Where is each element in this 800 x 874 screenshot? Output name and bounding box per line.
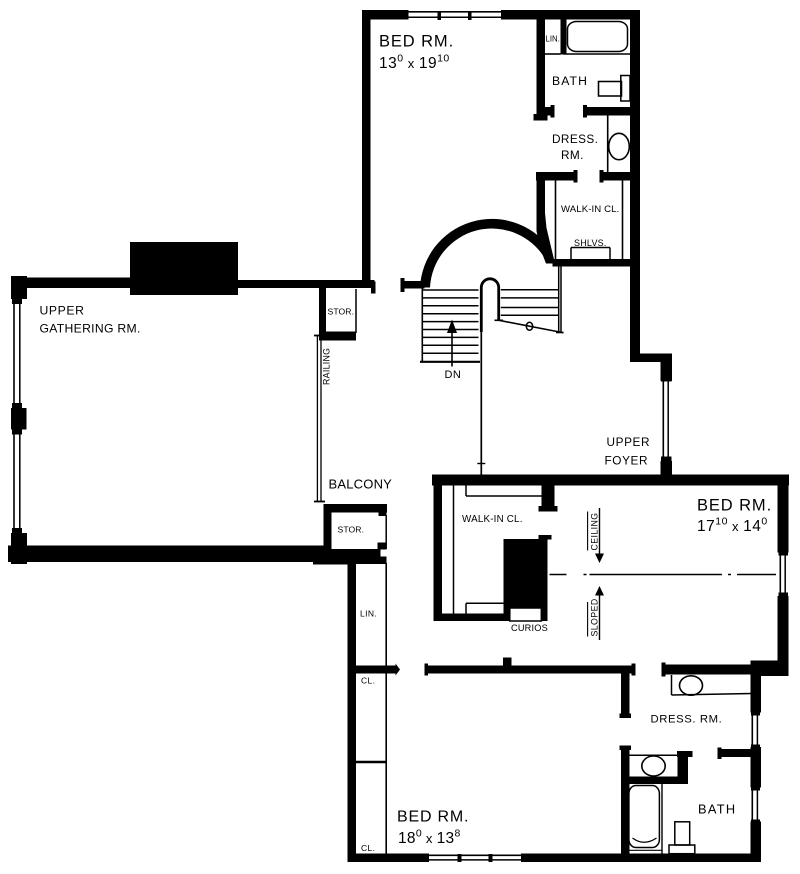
svg-text:CURIOS: CURIOS [511,623,548,633]
svg-text:RAILING: RAILING [322,348,332,385]
svg-text:LIN.: LIN. [360,609,377,619]
svg-text:CEILING: CEILING [589,513,599,551]
svg-text:UPPER: UPPER [607,435,651,449]
svg-text:1710 x 140: 1710 x 140 [697,516,768,536]
svg-text:DRESS.: DRESS. [552,132,598,146]
svg-text:STOR.: STOR. [328,307,355,317]
svg-text:DRESS. RM.: DRESS. RM. [651,714,723,726]
svg-text:WALK-IN CL.: WALK-IN CL. [561,204,619,215]
svg-text:BATH: BATH [698,802,736,817]
svg-text:WALK-IN CL.: WALK-IN CL. [462,514,523,525]
svg-text:SHLVS.: SHLVS. [574,238,607,248]
svg-text:BED RM.: BED RM. [379,33,454,51]
svg-text:DN: DN [445,369,462,381]
svg-text:FOYER: FOYER [605,454,649,468]
svg-text:CL.: CL. [361,843,375,853]
svg-text:BATH: BATH [552,74,588,88]
svg-text:UPPER: UPPER [40,304,85,318]
svg-text:CL.: CL. [361,676,375,686]
svg-text:LIN.: LIN. [546,35,560,44]
svg-text:RM.: RM. [561,148,584,162]
svg-text:SLOPED: SLOPED [589,598,599,636]
svg-text:STOR.: STOR. [338,525,365,535]
svg-text:180 x 138: 180 x 138 [398,828,461,848]
svg-text:BALCONY: BALCONY [329,477,393,492]
svg-text:BED RM.: BED RM. [697,497,772,515]
svg-text:BED RM.: BED RM. [397,809,469,826]
svg-text:GATHERING RM.: GATHERING RM. [40,322,141,336]
